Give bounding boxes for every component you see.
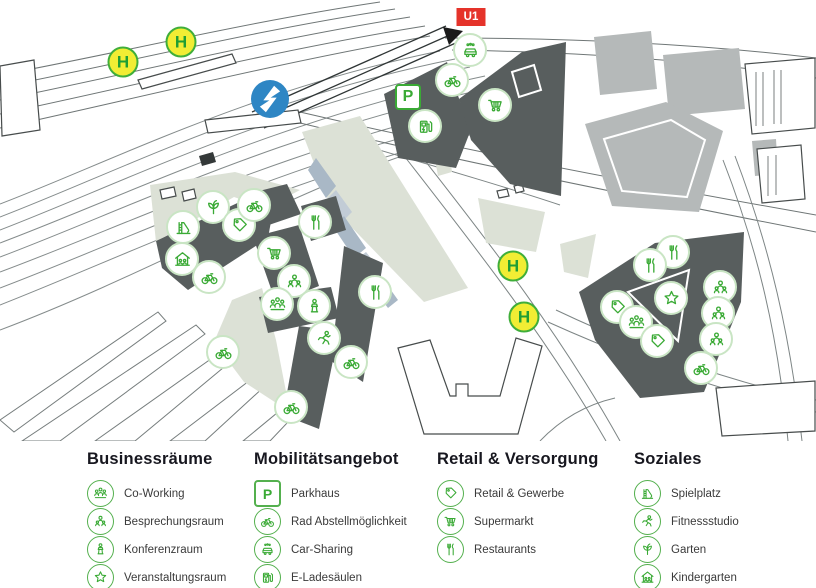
tram-stop-marker[interactable]: H (108, 47, 139, 78)
conference-room-icon (87, 536, 114, 563)
kindergarten-icon (172, 249, 193, 270)
playground-icon (173, 217, 194, 238)
tram-stop-marker[interactable]: H (166, 27, 197, 58)
bike-parking-icon (259, 513, 276, 530)
co-working-icon (92, 485, 109, 502)
marker-bike-parking[interactable] (334, 345, 368, 379)
legend-item-label: E-Ladesäulen (291, 572, 362, 584)
legend-item-label: Veranstaltungsraum (124, 572, 226, 584)
ev-charging-icon (259, 569, 276, 586)
meeting-room-icon (708, 303, 729, 324)
legend-item-label: Besprechungsraum (124, 516, 224, 528)
s-bahn-logo[interactable] (251, 80, 289, 118)
tram-stop-marker[interactable]: H (509, 302, 540, 333)
marker-bike-parking[interactable] (684, 351, 718, 385)
legend-item-conference-room: Konferenzraum (87, 536, 226, 563)
kindergarten-icon (639, 569, 656, 586)
legend: BusinessräumeCo-WorkingBesprechungsraumK… (0, 441, 816, 588)
marker-ev-charging[interactable] (408, 109, 442, 143)
car-sharing-icon (254, 536, 281, 563)
legend-item-restaurant: Restaurants (437, 536, 599, 563)
marker-co-working[interactable] (260, 287, 294, 321)
bike-parking-icon (442, 70, 463, 91)
legend-section-businessr-ume: BusinessräumeCo-WorkingBesprechungsraumK… (87, 450, 226, 588)
garden-icon (203, 197, 224, 218)
legend-item-ev-charging: E-Ladesäulen (254, 564, 407, 588)
marker-parking[interactable]: P (395, 84, 421, 110)
s-zigzag-icon (251, 80, 289, 118)
legend-item-kindergarten: Kindergarten (634, 564, 739, 588)
marker-conference-room[interactable] (297, 289, 331, 323)
bike-parking-icon (244, 195, 265, 216)
supermarket-icon (485, 95, 506, 116)
bike-parking-icon (281, 397, 302, 418)
marker-layer: PHHHHU1 (0, 0, 816, 441)
meeting-room-icon (87, 508, 114, 535)
conference-room-icon (304, 296, 325, 317)
marker-restaurant[interactable] (298, 205, 332, 239)
site-plan-page: PHHHHU1 BusinessräumeCo-WorkingBesprechu… (0, 0, 816, 588)
legend-item-co-working: Co-Working (87, 480, 226, 507)
marker-fitness[interactable] (307, 321, 341, 355)
tram-stop-marker[interactable]: H (498, 251, 529, 282)
meeting-room-icon (92, 513, 109, 530)
bike-parking-icon (199, 267, 220, 288)
legend-item-label: Fitnessstudio (671, 516, 739, 528)
marker-supermarket[interactable] (478, 88, 512, 122)
legend-section-title: Mobilitätsangebot (254, 450, 407, 469)
marker-bike-parking[interactable] (206, 335, 240, 369)
legend-item-meeting-room: Besprechungsraum (87, 508, 226, 535)
legend-item-label: Retail & Gewerbe (474, 488, 564, 500)
legend-item-event-room: Veranstaltungsraum (87, 564, 226, 588)
legend-item-label: Konferenzraum (124, 544, 203, 556)
legend-item-bike-parking: Rad Abstellmöglichkeit (254, 508, 407, 535)
legend-item-retail: Retail & Gewerbe (437, 480, 599, 507)
restaurant-icon (640, 255, 661, 276)
bike-parking-icon (691, 358, 712, 379)
supermarket-icon (437, 508, 464, 535)
event-room-icon (87, 564, 114, 588)
co-working-icon (87, 480, 114, 507)
supermarket-icon (264, 243, 285, 264)
marker-bike-parking[interactable] (237, 188, 271, 222)
legend-item-label: Restaurants (474, 544, 536, 556)
parking-icon: P (254, 480, 281, 507)
marker-playground[interactable] (166, 210, 200, 244)
legend-item-label: Co-Working (124, 488, 185, 500)
car-sharing-icon (259, 541, 276, 558)
retail-icon (647, 331, 668, 352)
legend-item-garden: Garten (634, 536, 739, 563)
ev-charging-icon (415, 116, 436, 137)
legend-item-label: Spielplatz (671, 488, 721, 500)
marker-bike-parking[interactable] (192, 260, 226, 294)
kindergarten-icon (634, 564, 661, 588)
legend-item-parking: PParkhaus (254, 480, 407, 507)
u1-badge[interactable]: U1 (457, 8, 486, 26)
legend-item-label: Garten (671, 544, 706, 556)
event-room-icon (661, 288, 682, 309)
site-map: PHHHHU1 (0, 0, 816, 441)
conference-room-icon (92, 541, 109, 558)
legend-item-label: Kindergarten (671, 572, 737, 584)
legend-item-label: Car-Sharing (291, 544, 353, 556)
marker-retail[interactable] (640, 324, 674, 358)
playground-icon (639, 485, 656, 502)
fitness-icon (634, 508, 661, 535)
ev-charging-icon (254, 564, 281, 588)
legend-item-label: Parkhaus (291, 488, 340, 500)
meeting-room-icon (284, 271, 305, 292)
legend-section-retail-versorgung: Retail & VersorgungRetail & GewerbeSuper… (437, 450, 599, 564)
marker-car-sharing[interactable] (453, 33, 487, 67)
meeting-room-icon (710, 277, 731, 298)
restaurant-icon (437, 536, 464, 563)
fitness-icon (639, 513, 656, 530)
marker-event-room[interactable] (654, 281, 688, 315)
legend-item-label: Supermarkt (474, 516, 533, 528)
legend-item-car-sharing: Car-Sharing (254, 536, 407, 563)
supermarket-icon (442, 513, 459, 530)
retail-icon (437, 480, 464, 507)
legend-section-mobilit-tsangebot: MobilitätsangebotPParkhausRad Abstellmög… (254, 450, 407, 588)
retail-icon (442, 485, 459, 502)
fitness-icon (314, 328, 335, 349)
legend-section-title: Retail & Versorgung (437, 450, 599, 469)
event-room-icon (92, 569, 109, 586)
garden-icon (634, 536, 661, 563)
bike-parking-icon (341, 352, 362, 373)
restaurant-icon (442, 541, 459, 558)
marker-restaurant[interactable] (358, 275, 392, 309)
garden-icon (639, 541, 656, 558)
legend-section-title: Soziales (634, 450, 739, 469)
marker-bike-parking[interactable] (435, 63, 469, 97)
car-sharing-icon (460, 40, 481, 61)
playground-icon (634, 480, 661, 507)
legend-section-title: Businessräume (87, 450, 226, 469)
meeting-room-icon (706, 329, 727, 350)
restaurant-icon (365, 282, 386, 303)
legend-item-supermarket: Supermarkt (437, 508, 599, 535)
legend-item-label: Rad Abstellmöglichkeit (291, 516, 407, 528)
co-working-icon (267, 294, 288, 315)
legend-item-fitness: Fitnessstudio (634, 508, 739, 535)
bike-parking-icon (213, 342, 234, 363)
legend-section-soziales: SozialesSpielplatzFitnessstudioGartenKin… (634, 450, 739, 588)
marker-bike-parking[interactable] (274, 390, 308, 424)
legend-item-playground: Spielplatz (634, 480, 739, 507)
marker-restaurant[interactable] (633, 248, 667, 282)
restaurant-icon (305, 212, 326, 233)
bike-parking-icon (254, 508, 281, 535)
